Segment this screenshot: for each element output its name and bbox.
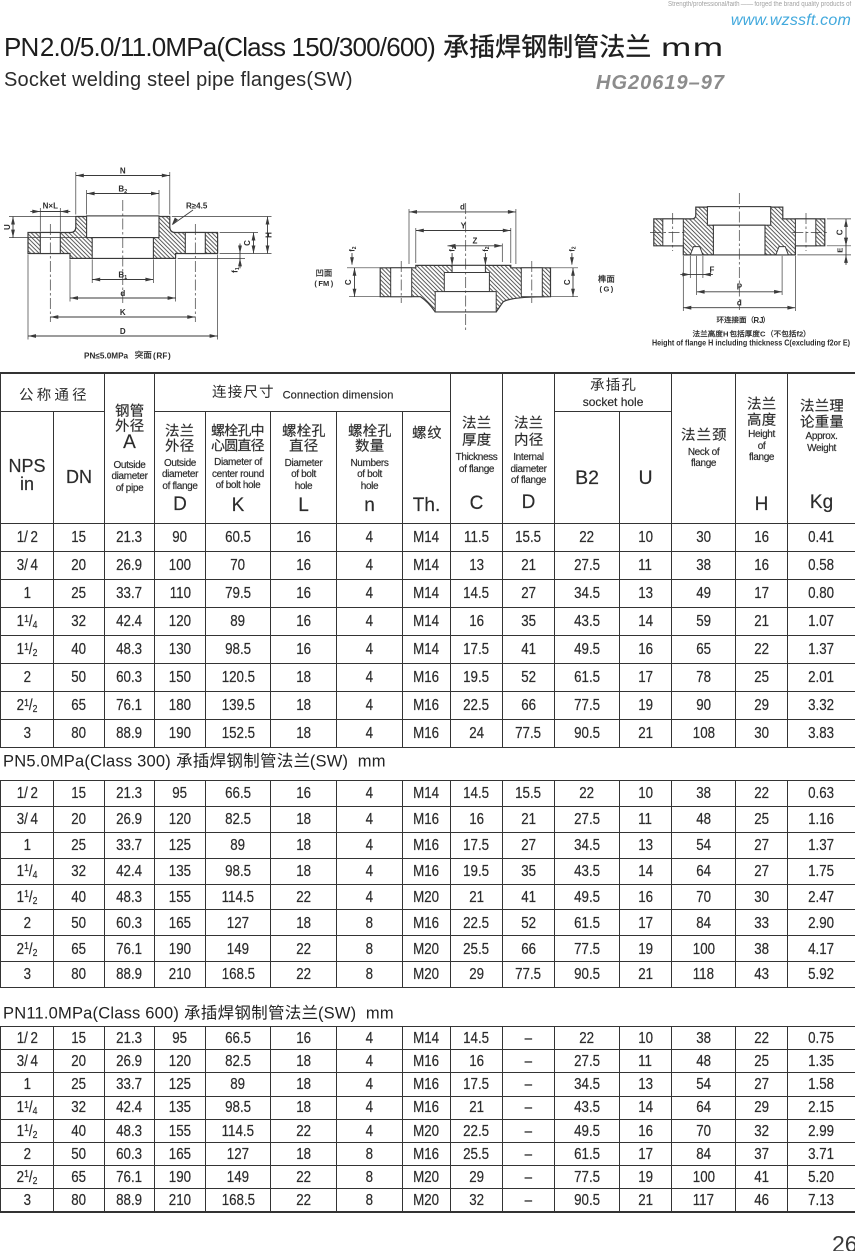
- svg-text:d: d: [737, 299, 742, 308]
- svg-text:d: d: [120, 289, 125, 298]
- svg-text:U: U: [3, 224, 12, 230]
- svg-text:d: d: [460, 203, 465, 212]
- svg-text:( G ): ( G ): [599, 285, 613, 294]
- svg-text:C: C: [760, 330, 766, 339]
- svg-text:B2: B2: [118, 184, 127, 195]
- svg-text:Y: Y: [461, 221, 467, 230]
- svg-text:N: N: [120, 166, 126, 175]
- svg-text:f2: f2: [350, 246, 358, 251]
- svg-text:f2: f2: [483, 246, 491, 251]
- svg-text:N×L: N×L: [43, 202, 58, 211]
- svg-text:( FM ): ( FM ): [314, 279, 333, 288]
- svg-text:f2: f2: [450, 246, 458, 251]
- svg-text:C: C: [836, 229, 845, 235]
- svg-text:B1: B1: [118, 270, 127, 281]
- svg-text:R≥4.5: R≥4.5: [186, 202, 208, 211]
- svg-text:Height of flange H including t: Height of flange H including thickness C…: [652, 339, 850, 348]
- svg-text:Z: Z: [472, 237, 477, 246]
- svg-text:( RF ): ( RF ): [153, 352, 171, 361]
- svg-text:f2: f2: [570, 246, 578, 251]
- svg-text:PN≤5.0MPa: PN≤5.0MPa: [84, 352, 129, 361]
- svg-text:f2: f2: [797, 330, 804, 339]
- svg-text:K: K: [120, 308, 126, 317]
- svg-text:RJ: RJ: [754, 316, 764, 325]
- svg-text:E: E: [835, 248, 844, 253]
- svg-text:C: C: [243, 240, 252, 246]
- svg-text:D: D: [120, 327, 126, 336]
- svg-text:H: H: [265, 232, 274, 238]
- svg-text:P: P: [737, 283, 743, 292]
- svg-text:C: C: [563, 279, 572, 285]
- svg-text:F: F: [710, 266, 715, 275]
- svg-text:H: H: [723, 330, 728, 339]
- svg-text:f1: f1: [231, 267, 242, 273]
- svg-text:C: C: [344, 279, 353, 285]
